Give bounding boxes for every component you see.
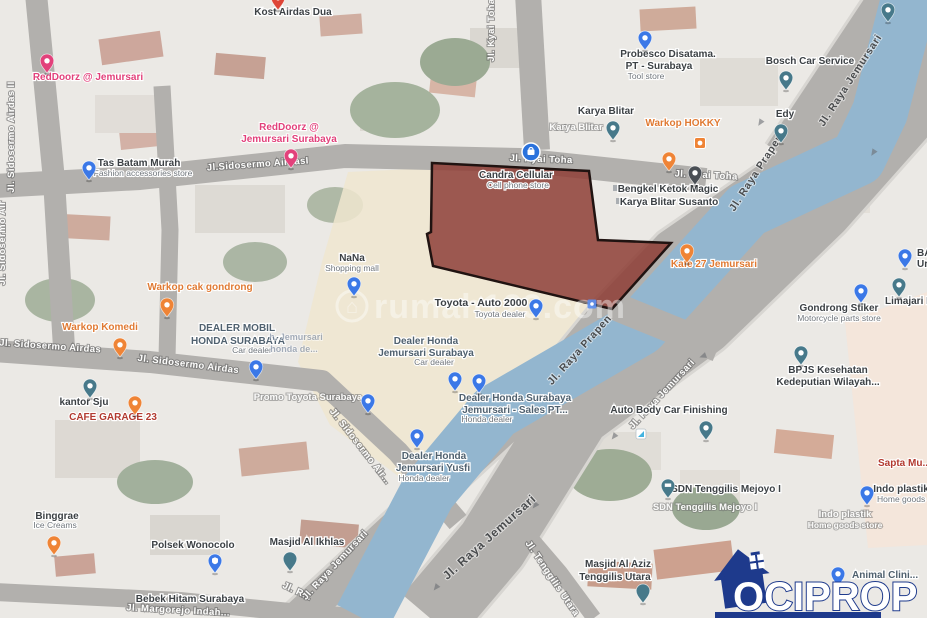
car-wash-marker[interactable]	[636, 429, 646, 439]
map-canvas: ⌂ rumah123.com Kost Airdas DuaRedDoorz @…	[0, 0, 927, 618]
map-label[interactable]: Bosch Car Service	[766, 56, 855, 67]
road-kyai-toha-vertical	[528, 0, 537, 150]
map-label[interactable]: Probesco Disatama.	[620, 49, 716, 60]
map-label[interactable]: Indo plastik	[819, 509, 873, 520]
map-label: Jl. Kyai Toha	[509, 153, 573, 166]
map-label[interactable]: Kost Airdas Dua	[254, 7, 332, 18]
map-label[interactable]: Sapta Mu...	[878, 458, 927, 469]
map-label[interactable]: Karya Blitar	[578, 106, 634, 117]
map-label[interactable]: Edy	[776, 109, 795, 120]
map-label[interactable]: Dealer Honda	[394, 336, 459, 347]
map-label[interactable]: Bengkel Ketok Magic	[618, 184, 719, 195]
map-label[interactable]: RedDoorz @	[259, 122, 319, 133]
map-label: Jl. Sidosermo Air	[0, 201, 8, 286]
map-label[interactable]: BA	[917, 248, 927, 259]
map-label[interactable]: kantor Sju	[60, 397, 109, 408]
map-label[interactable]: Ice Creams	[33, 520, 76, 530]
map-label[interactable]: Honda dealer	[398, 473, 449, 483]
map-label[interactable]: Toyota - Auto 2000	[435, 297, 528, 309]
map-label[interactable]: Dealer Honda	[402, 451, 467, 462]
map-label[interactable]: Shopping mall	[325, 263, 379, 273]
map-label: Jl. Sidosermo Airdas II	[6, 81, 17, 192]
map-label[interactable]: Polsek Wonocolo	[151, 540, 234, 551]
ociprop-logo: OCIPROP	[712, 544, 927, 618]
map-label[interactable]: Fashion accessories store	[94, 168, 193, 178]
map-label[interactable]: Warkop HOKKY	[645, 118, 721, 129]
map-label[interactable]: Car dealer	[414, 357, 454, 367]
map-label[interactable]: Karya Blitar Susanto	[620, 197, 718, 208]
map-label[interactable]: Home goods store	[808, 520, 883, 530]
map-label[interactable]: Toyota dealer	[474, 309, 525, 319]
map-screenshot: ⌂ rumah123.com Kost Airdas DuaRedDoorz @…	[0, 0, 927, 618]
map-label: Jl. Kyai Toha	[486, 0, 497, 62]
map-label[interactable]: Masjid Al Ikhlas	[270, 537, 345, 548]
map-label[interactable]: DEALER MOBIL	[199, 323, 275, 334]
map-label[interactable]: SDN Tenggilis Mejoyo I	[653, 502, 757, 513]
map-label[interactable]: CAFE GARAGE 23	[69, 412, 157, 423]
logo-text: OCIPROP	[733, 575, 917, 618]
map-label[interactable]: Tool store	[628, 71, 665, 81]
warkop-hokky-pin[interactable]	[695, 138, 706, 149]
map-label[interactable]: Limajari R	[885, 296, 927, 307]
map-label[interactable]: Karya Blitar	[549, 122, 603, 133]
map-label[interactable]: SDN Tenggilis Mejoyo I	[671, 484, 781, 495]
map-label[interactable]: Car dealer	[232, 345, 272, 355]
map-label[interactable]: Honda dealer	[461, 414, 512, 424]
map-label[interactable]: Cell phone store	[487, 180, 549, 190]
map-label[interactable]: Masjid Al Aziz	[585, 559, 651, 570]
map-label[interactable]: Promo Toyota Surabaya	[254, 392, 363, 403]
map-label: honda de...	[270, 344, 318, 354]
map-label[interactable]: Jemursari Surabaya	[241, 134, 337, 145]
map-label[interactable]: Kedeputian Wilayah...	[776, 377, 879, 388]
mini-marker[interactable]	[588, 300, 597, 309]
map-label: h. Jemursari	[269, 332, 323, 342]
watermark-house-icon: ⌂	[346, 296, 358, 318]
map-label[interactable]: Warkop cak gondrong	[147, 282, 252, 293]
map-label[interactable]: Auto Body Car Finishing	[610, 405, 727, 416]
map-label[interactable]: Motorcycle parts store	[797, 313, 881, 323]
map-label[interactable]: Kafe 27 Jemursari	[671, 259, 757, 270]
map-label[interactable]: Ur	[917, 259, 927, 270]
map-label[interactable]: Tenggilis Utara	[579, 572, 651, 583]
candra-cellular-pin[interactable]	[522, 143, 540, 161]
map-label[interactable]: Dealer Honda Surabaya	[459, 393, 572, 404]
map-label[interactable]: Home goods s...	[877, 494, 927, 504]
map-label[interactable]: Warkop Komedi	[62, 322, 138, 333]
